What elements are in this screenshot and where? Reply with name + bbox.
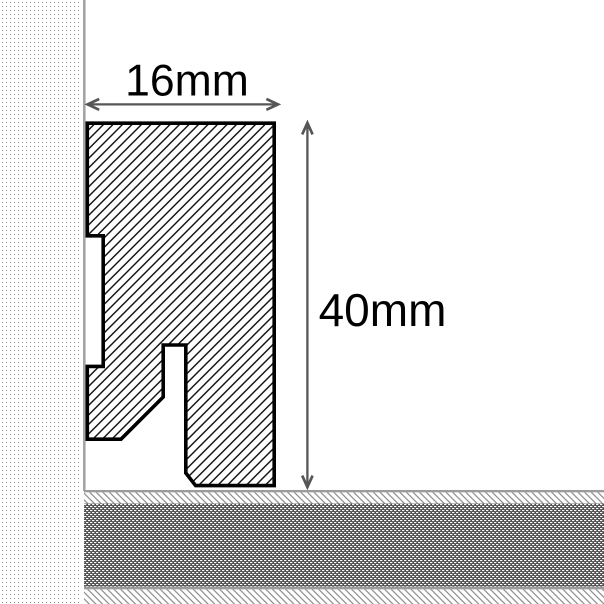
svg-text:16mm: 16mm bbox=[125, 57, 249, 106]
svg-text:40mm: 40mm bbox=[319, 284, 447, 336]
